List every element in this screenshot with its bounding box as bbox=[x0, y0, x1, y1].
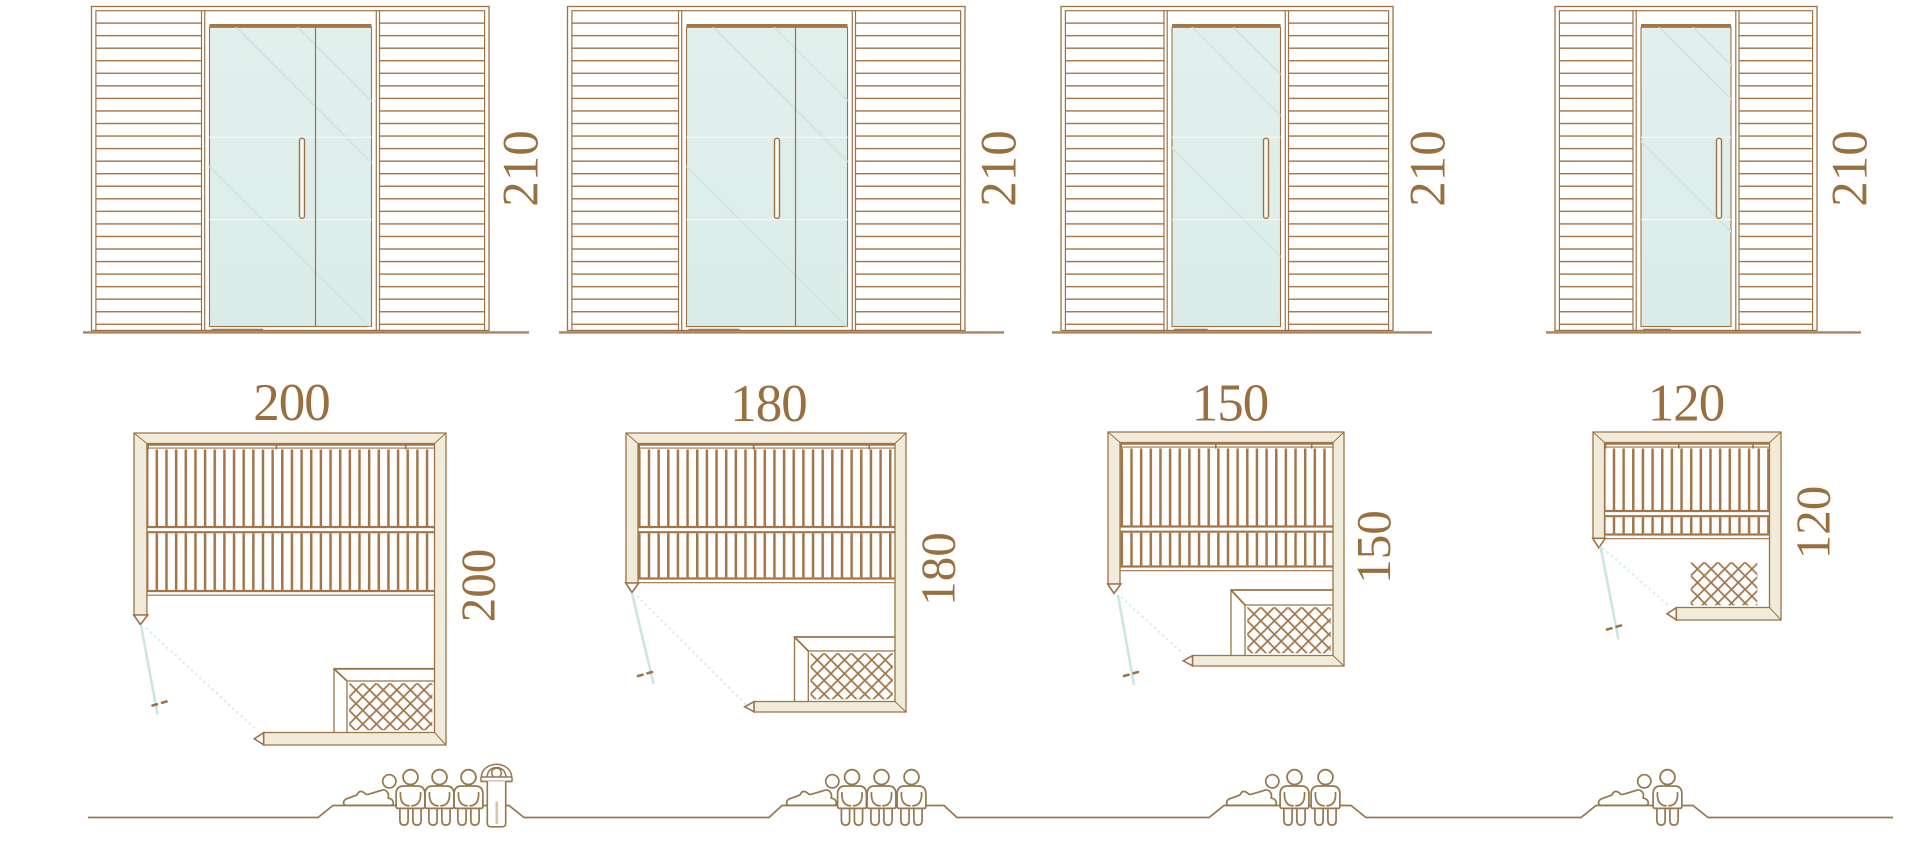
svg-text:210: 210 bbox=[1401, 130, 1457, 207]
svg-text:200: 200 bbox=[253, 374, 330, 432]
svg-text:210: 210 bbox=[494, 130, 550, 207]
svg-text:210: 210 bbox=[972, 130, 1028, 207]
svg-text:150: 150 bbox=[1192, 375, 1269, 433]
svg-text:180: 180 bbox=[911, 532, 966, 606]
svg-text:150: 150 bbox=[1346, 510, 1401, 584]
svg-text:210: 210 bbox=[1823, 130, 1879, 207]
svg-text:120: 120 bbox=[1648, 375, 1725, 433]
svg-text:180: 180 bbox=[730, 375, 807, 433]
svg-text:200: 200 bbox=[451, 549, 506, 623]
svg-text:120: 120 bbox=[1786, 486, 1841, 560]
